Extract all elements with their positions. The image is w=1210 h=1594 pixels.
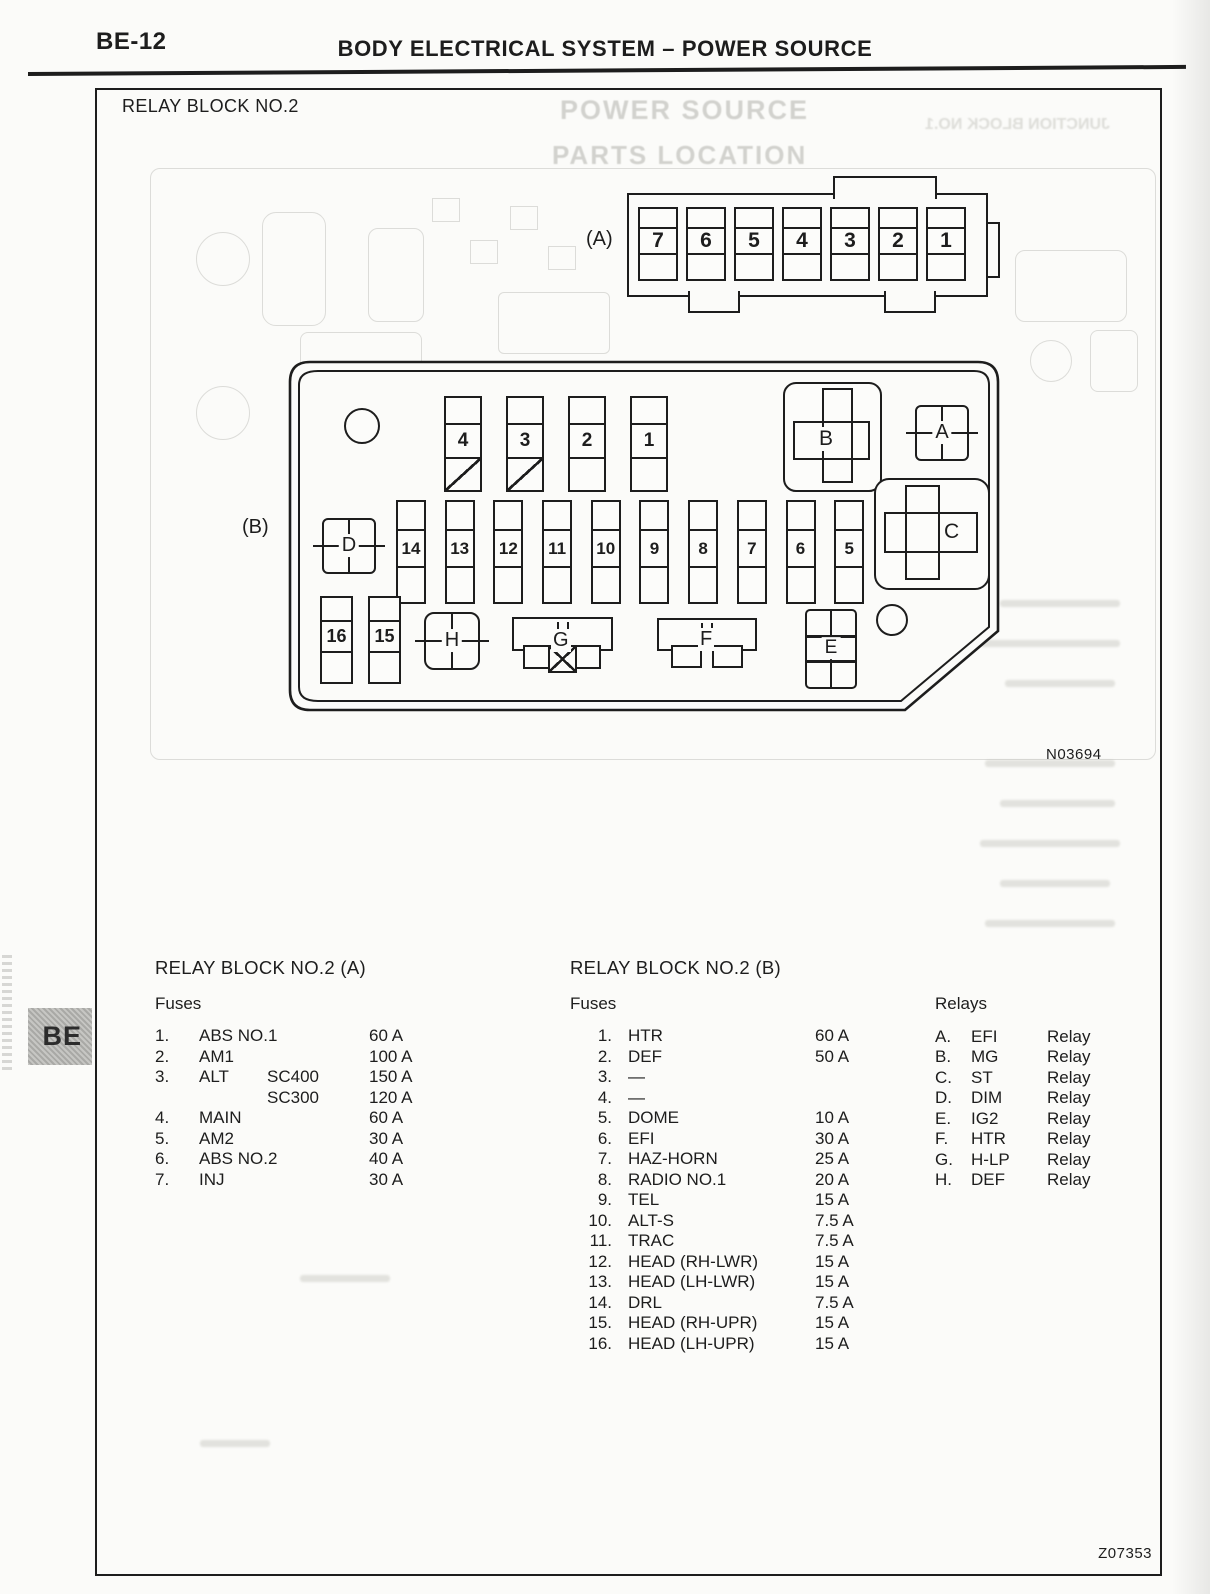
fuse-slot-top	[446, 398, 480, 425]
relay-c-hbar	[884, 512, 978, 553]
relay-type: Relay	[1047, 1150, 1090, 1171]
fuse-slot: 12	[493, 500, 523, 604]
fuse-amp: 50 A	[815, 1047, 854, 1068]
fuse-amp	[815, 1067, 854, 1088]
fuse-slot-top	[784, 209, 820, 229]
fuse-slot-number: 4	[446, 425, 480, 459]
fuse-amp: 30 A	[815, 1129, 854, 1150]
page-code: Z07353	[1098, 1545, 1152, 1562]
fuse-slot-number: 12	[495, 531, 521, 568]
fuse-name: TRAC	[628, 1231, 815, 1252]
table-a-rows: 1. ABS NO.1 60 A 2. AM1 100 A 3. ALT SC4…	[155, 1026, 413, 1190]
fuse-amp: 25 A	[815, 1149, 854, 1170]
fuse-amp: 20 A	[815, 1170, 854, 1191]
fuse-name: HEAD (LH-LWR)	[628, 1272, 815, 1293]
fuse-number: 6.	[155, 1149, 199, 1170]
fuse-slot-top	[495, 502, 521, 531]
relay-letter: H.	[935, 1170, 971, 1191]
relay-letter: A.	[935, 1027, 971, 1048]
block-b-mid-fuse-row: 14 13 12 11 10	[396, 500, 864, 604]
fuse-variant	[267, 1026, 369, 1047]
table-row: E. IG2 Relay	[935, 1109, 1090, 1130]
fuse-slot-bottom	[784, 255, 820, 279]
fuse-slot-bottom	[641, 568, 667, 602]
fuse-name: HAZ-HORN	[628, 1149, 815, 1170]
fuse-slot-bottom	[632, 459, 666, 490]
relay-type: Relay	[1047, 1129, 1090, 1150]
fuse-amp: 10 A	[815, 1108, 854, 1129]
table-row: 3. ALT SC400 150 A	[155, 1067, 413, 1088]
relay-a-letter: A	[932, 421, 951, 444]
ghost-line	[1000, 880, 1110, 887]
figure-code: N03694	[1046, 746, 1102, 763]
relay-name: HTR	[971, 1129, 1047, 1150]
section-tab-be: BE	[28, 1008, 92, 1065]
mount-hole-circle	[876, 604, 908, 636]
fuse-amp: 150 A	[369, 1067, 413, 1088]
table-row: 5. AM2 30 A	[155, 1129, 413, 1150]
fuse-amp: 120 A	[369, 1088, 413, 1109]
table-row: 3. —	[570, 1067, 854, 1088]
table-row: SC300 120 A	[155, 1088, 413, 1109]
fuse-slot: 1	[926, 207, 966, 281]
relay-letter: E.	[935, 1109, 971, 1130]
fuse-number: 15.	[570, 1313, 612, 1334]
fuse-slot-number: 7	[640, 229, 676, 255]
fuse-number: 8.	[570, 1170, 612, 1191]
relay-type: Relay	[1047, 1109, 1090, 1130]
fuse-amp: 7.5 A	[815, 1231, 854, 1252]
relays-title: Relays	[935, 994, 1090, 1015]
fuse-slot-top	[928, 209, 964, 229]
table-row: 7. HAZ-HORN 25 A	[570, 1149, 854, 1170]
fuse-slot-number: 15	[370, 622, 399, 653]
connector-a-bottom-tab	[884, 291, 936, 313]
table-row: 6. ABS NO.2 40 A	[155, 1149, 413, 1170]
fuse-slot-top	[398, 502, 424, 531]
fuse-slot: 6	[786, 500, 816, 604]
table-row: H. DEF Relay	[935, 1170, 1090, 1191]
ghost-line	[200, 1440, 270, 1447]
fuse-slot-bottom	[544, 568, 570, 602]
relay-letter: G.	[935, 1150, 971, 1171]
relay-name: DIM	[971, 1088, 1047, 1109]
fuse-name: ALT	[199, 1067, 267, 1088]
relay-letter: C.	[935, 1068, 971, 1089]
relay-c: C	[874, 478, 990, 590]
fuse-slot-number: 5	[736, 229, 772, 255]
fuse-slot-number: 16	[322, 622, 351, 653]
table-a-subtitle: Fuses	[155, 994, 413, 1015]
fuse-slot: 10	[591, 500, 621, 604]
relay-type: Relay	[1047, 1047, 1090, 1068]
fuse-amp: 40 A	[369, 1149, 413, 1170]
fuse-slot-bottom	[508, 459, 542, 490]
fuse-slot-bottom	[788, 568, 814, 602]
fuse-slot-top	[739, 502, 765, 531]
fuse-slot-top	[593, 502, 619, 531]
fuse-number: 3.	[570, 1067, 612, 1088]
fuse-slot-top	[788, 502, 814, 531]
fuse-slot-top	[690, 502, 716, 531]
fuse-name: HEAD (RH-UPR)	[628, 1313, 815, 1334]
fuse-number: 1.	[155, 1026, 199, 1047]
table-row: B. MG Relay	[935, 1047, 1090, 1068]
table-row: 1. HTR 60 A	[570, 1026, 854, 1047]
fuse-variant: SC300	[267, 1088, 369, 1109]
fuse-variant	[267, 1170, 369, 1191]
fuse-name: MAIN	[199, 1108, 267, 1129]
relay-letter: F.	[935, 1129, 971, 1150]
table-b-title: RELAY BLOCK NO.2 (B)	[570, 958, 854, 979]
table-row: 4. —	[570, 1088, 854, 1109]
fuse-name: EFI	[628, 1129, 815, 1150]
relay-name: EFI	[971, 1027, 1047, 1048]
fuse-slot-number: 2	[570, 425, 604, 459]
fuse-number: 16.	[570, 1334, 612, 1355]
table-row: 5. DOME 10 A	[570, 1108, 854, 1129]
fuse-amp: 30 A	[369, 1129, 413, 1150]
fuse-slot-number: 14	[398, 531, 424, 568]
fuse-slot-top	[632, 398, 666, 425]
relay-type: Relay	[1047, 1170, 1090, 1191]
ghost-line	[300, 1275, 390, 1282]
fuse-amp: 15 A	[815, 1190, 854, 1211]
fuse-name: DEF	[628, 1047, 815, 1068]
fuse-slot: 11	[542, 500, 572, 604]
relays-rows: A. EFI Relay B. MG Relay C. ST Relay	[935, 1027, 1090, 1191]
fuse-slot-bottom	[370, 653, 399, 682]
fuse-slot-number: 6	[788, 531, 814, 568]
relay-letter: D.	[935, 1088, 971, 1109]
ghost-text-power-source: POWER SOURCE	[560, 95, 809, 126]
ghost-text-junction-block: JUNCTION BLOCK NO.1	[925, 116, 1110, 134]
table-relays: Relays A. EFI Relay B. MG Relay C. ST	[935, 994, 1090, 1191]
fuse-slot: 7	[638, 207, 678, 281]
fuse-number: 1.	[570, 1026, 612, 1047]
relay-name: ST	[971, 1068, 1047, 1089]
table-row: D. DIM Relay	[935, 1088, 1090, 1109]
fuse-slot-number: 3	[832, 229, 868, 255]
fuse-slot-top	[640, 209, 676, 229]
fuse-number: 4.	[155, 1108, 199, 1129]
fuse-amp: 7.5 A	[815, 1293, 854, 1314]
fuse-slot-top	[370, 598, 399, 622]
fuse-slot-top	[447, 502, 473, 531]
fuse-name: HTR	[628, 1026, 815, 1047]
fuse-slot: 4	[444, 396, 482, 492]
manual-page: BE-12 BODY ELECTRICAL SYSTEM – POWER SOU…	[0, 0, 1210, 1594]
fuse-slot-bottom	[739, 568, 765, 602]
fuse-slot-bottom	[446, 459, 480, 490]
fuse-amp: 15 A	[815, 1272, 854, 1293]
fuse-number: 3.	[155, 1067, 199, 1088]
table-row: G. H-LP Relay	[935, 1150, 1090, 1171]
fuse-number: 2.	[570, 1047, 612, 1068]
relay-name: IG2	[971, 1109, 1047, 1130]
fuse-slot: 16	[320, 596, 353, 684]
ghost-text-parts-location: PARTS LOCATION	[552, 140, 807, 171]
fuse-amp	[815, 1088, 854, 1109]
fuse-slot: 2	[878, 207, 918, 281]
fuse-name: TEL	[628, 1190, 815, 1211]
relay-c-letter: C	[942, 520, 961, 544]
fuse-slot-bottom	[640, 255, 676, 279]
relay-g-tab	[523, 645, 550, 669]
fuse-slot: 13	[445, 500, 475, 604]
fuse-slot-top	[832, 209, 868, 229]
ghost-line	[1005, 680, 1115, 687]
fuse-slot: 1	[630, 396, 668, 492]
fuse-slot: 3	[830, 207, 870, 281]
fuse-name: ABS NO.1	[199, 1026, 267, 1047]
fuse-slot-top	[688, 209, 724, 229]
relay-b-letter: B	[817, 427, 835, 451]
header-title: BODY ELECTRICAL SYSTEM – POWER SOURCE	[0, 36, 1210, 62]
table-row: 8. RADIO NO.1 20 A	[570, 1170, 854, 1191]
connector-a-label: (A)	[586, 228, 613, 251]
relay-d: D	[322, 518, 376, 574]
fuse-variant	[267, 1047, 369, 1068]
table-row: A. EFI Relay	[935, 1027, 1090, 1048]
relay-type: Relay	[1047, 1027, 1090, 1048]
relay-b: B	[783, 382, 882, 492]
fuse-slot-top	[508, 398, 542, 425]
table-relay-block-a: RELAY BLOCK NO.2 (A) Fuses 1. ABS NO.1 6…	[155, 958, 413, 1190]
fuse-slot-number: 3	[508, 425, 542, 459]
section-title: RELAY BLOCK NO.2	[122, 96, 299, 117]
fuse-amp: 15 A	[815, 1334, 854, 1355]
connector-a-fuse-row: 7 6 5 4 3	[638, 207, 966, 281]
fuse-slot: 2	[568, 396, 606, 492]
fuse-number: 7.	[155, 1170, 199, 1191]
fuse-slot-top	[736, 209, 772, 229]
fuse-variant	[267, 1129, 369, 1150]
fuse-name: —	[628, 1088, 815, 1109]
block-b-bottom-fuse-row: 16 15	[320, 596, 401, 684]
fuse-slot: 8	[688, 500, 718, 604]
fuse-slot-bottom	[880, 255, 916, 279]
fuse-slot-bottom	[836, 568, 862, 602]
fuse-slot: 6	[686, 207, 726, 281]
fuse-variant	[267, 1149, 369, 1170]
relay-e-hline	[807, 660, 855, 662]
fuse-number: 2.	[155, 1047, 199, 1068]
fuse-slot-number: 11	[544, 531, 570, 568]
table-row: 2. DEF 50 A	[570, 1047, 854, 1068]
fuse-number: 14.	[570, 1293, 612, 1314]
fuse-number: 11.	[570, 1231, 612, 1252]
fuse-slot-bottom	[495, 568, 521, 602]
table-row: 9. TEL 15 A	[570, 1190, 854, 1211]
block-b-label: (B)	[242, 516, 269, 539]
fuse-slot: 5	[834, 500, 864, 604]
fuse-slot-number: 13	[447, 531, 473, 568]
relay-e: E	[805, 609, 857, 689]
relay-g-tab	[575, 645, 601, 669]
fuse-amp: 30 A	[369, 1170, 413, 1191]
relay-h-letter: H	[442, 629, 462, 652]
relay-name: MG	[971, 1047, 1047, 1068]
table-b-subtitle: Fuses	[570, 994, 854, 1015]
fuse-name: AM2	[199, 1129, 267, 1150]
table-row: 1. ABS NO.1 60 A	[155, 1026, 413, 1047]
table-row: 4. MAIN 60 A	[155, 1108, 413, 1129]
table-row: 7. INJ 30 A	[155, 1170, 413, 1191]
fuse-slot-bottom	[570, 459, 604, 490]
table-row: F. HTR Relay	[935, 1129, 1090, 1150]
fuse-slot-bottom	[832, 255, 868, 279]
relay-h: H	[424, 612, 480, 670]
fuse-name: ALT-S	[628, 1211, 815, 1232]
fuse-number: 5.	[570, 1108, 612, 1129]
fuse-number: 10.	[570, 1211, 612, 1232]
fuse-variant	[267, 1108, 369, 1129]
fuse-name: DRL	[628, 1293, 815, 1314]
fuse-name: AM1	[199, 1047, 267, 1068]
relay-type: Relay	[1047, 1088, 1090, 1109]
relay-name: H-LP	[971, 1150, 1047, 1171]
fuse-slot-number: 1	[632, 425, 666, 459]
ghost-line	[980, 840, 1120, 847]
fuse-number: 6.	[570, 1129, 612, 1150]
ghost-line	[985, 920, 1115, 927]
fuse-slot: 14	[396, 500, 426, 604]
fuse-slot: 9	[639, 500, 669, 604]
table-row: C. ST Relay	[935, 1068, 1090, 1089]
fuse-slot-bottom	[593, 568, 619, 602]
fuse-amp: 15 A	[815, 1252, 854, 1273]
fuse-number: 7.	[570, 1149, 612, 1170]
ghost-line	[1000, 600, 1120, 607]
table-row: 15. HEAD (RH-UPR) 15 A	[570, 1313, 854, 1334]
fuse-slot-bottom	[322, 653, 351, 682]
fuse-amp: 60 A	[369, 1108, 413, 1129]
fuse-slot-top	[836, 502, 862, 531]
fuse-slot: 7	[737, 500, 767, 604]
relay-g-letter: G	[551, 629, 571, 652]
table-row: 13. HEAD (LH-LWR) 15 A	[570, 1272, 854, 1293]
fuse-slot-bottom	[447, 568, 473, 602]
table-row: 11. TRAC 7.5 A	[570, 1231, 854, 1252]
fuse-amp: 15 A	[815, 1313, 854, 1334]
fuse-slot-number: 5	[836, 531, 862, 568]
fuse-name: HEAD (RH-LWR)	[628, 1252, 815, 1273]
fuse-slot-bottom	[690, 568, 716, 602]
fuse-slot-bottom	[928, 255, 964, 279]
fuse-slot-number: 8	[690, 531, 716, 568]
relay-f-letter: F	[698, 628, 714, 651]
fuse-slot-number: 4	[784, 229, 820, 255]
fuse-slot-number: 6	[688, 229, 724, 255]
fuse-amp: 100 A	[369, 1047, 413, 1068]
fuse-slot: 4	[782, 207, 822, 281]
fuse-slot-bottom	[688, 255, 724, 279]
fuse-number	[155, 1088, 199, 1109]
fuse-name: ABS NO.2	[199, 1149, 267, 1170]
relay-type: Relay	[1047, 1068, 1090, 1089]
fuse-slot: 15	[368, 596, 401, 684]
connector-a-bottom-tab	[688, 291, 740, 313]
fuse-number: 13.	[570, 1272, 612, 1293]
table-row: 12. HEAD (RH-LWR) 15 A	[570, 1252, 854, 1273]
fuse-amp: 60 A	[369, 1026, 413, 1047]
table-row: 14. DRL 7.5 A	[570, 1293, 854, 1314]
fuse-slot-top	[880, 209, 916, 229]
fuse-number: 9.	[570, 1190, 612, 1211]
fuse-slot: 5	[734, 207, 774, 281]
table-row: 16. HEAD (LH-UPR) 15 A	[570, 1334, 854, 1355]
table-row: 2. AM1 100 A	[155, 1047, 413, 1068]
fuse-variant: SC400	[267, 1067, 369, 1088]
fuse-slot-top	[641, 502, 667, 531]
relay-f-tab	[712, 645, 743, 668]
fuse-slot-number: 1	[928, 229, 964, 255]
table-row: 10. ALT-S 7.5 A	[570, 1211, 854, 1232]
fuse-slot-number: 10	[593, 531, 619, 568]
fuse-name	[199, 1088, 267, 1109]
block-b-top-fuse-row: 4 3 2 1	[444, 396, 668, 492]
binding-edge	[2, 952, 12, 1070]
fuse-slot-top	[544, 502, 570, 531]
fuse-slot-bottom	[398, 568, 424, 602]
relay-name: DEF	[971, 1170, 1047, 1191]
table-relay-block-b: RELAY BLOCK NO.2 (B) Fuses 1. HTR 60 A 2…	[570, 958, 854, 1354]
fuse-slot-number: 2	[880, 229, 916, 255]
fuse-slot-top	[570, 398, 604, 425]
fuse-slot-number: 9	[641, 531, 667, 568]
fuse-number: 5.	[155, 1129, 199, 1150]
connector-a-top-tab	[833, 176, 937, 199]
relay-e-letter: E	[822, 637, 841, 659]
fuse-slot: 3	[506, 396, 544, 492]
fuse-name: —	[628, 1067, 815, 1088]
fuse-slot-number: 7	[739, 531, 765, 568]
fuse-name: DOME	[628, 1108, 815, 1129]
mount-hole-circle	[344, 408, 380, 444]
fuse-number: 12.	[570, 1252, 612, 1273]
fuse-slot-bottom	[736, 255, 772, 279]
table-row: 6. EFI 30 A	[570, 1129, 854, 1150]
fuse-amp: 7.5 A	[815, 1211, 854, 1232]
fuse-amp: 60 A	[815, 1026, 854, 1047]
table-b-rows: 1. HTR 60 A 2. DEF 50 A 3. —	[570, 1026, 854, 1354]
header-rule	[28, 65, 1186, 76]
fuse-name: INJ	[199, 1170, 267, 1191]
relay-letter: B.	[935, 1047, 971, 1068]
fuse-name: HEAD (LH-UPR)	[628, 1334, 815, 1355]
table-a-title: RELAY BLOCK NO.2 (A)	[155, 958, 413, 979]
ghost-line	[1000, 800, 1115, 807]
fuse-name: RADIO NO.1	[628, 1170, 815, 1191]
relay-a: A	[915, 405, 969, 461]
relay-d-letter: D	[339, 534, 359, 557]
ghost-line	[980, 640, 1120, 647]
fuse-number: 4.	[570, 1088, 612, 1109]
fuse-slot-top	[322, 598, 351, 622]
